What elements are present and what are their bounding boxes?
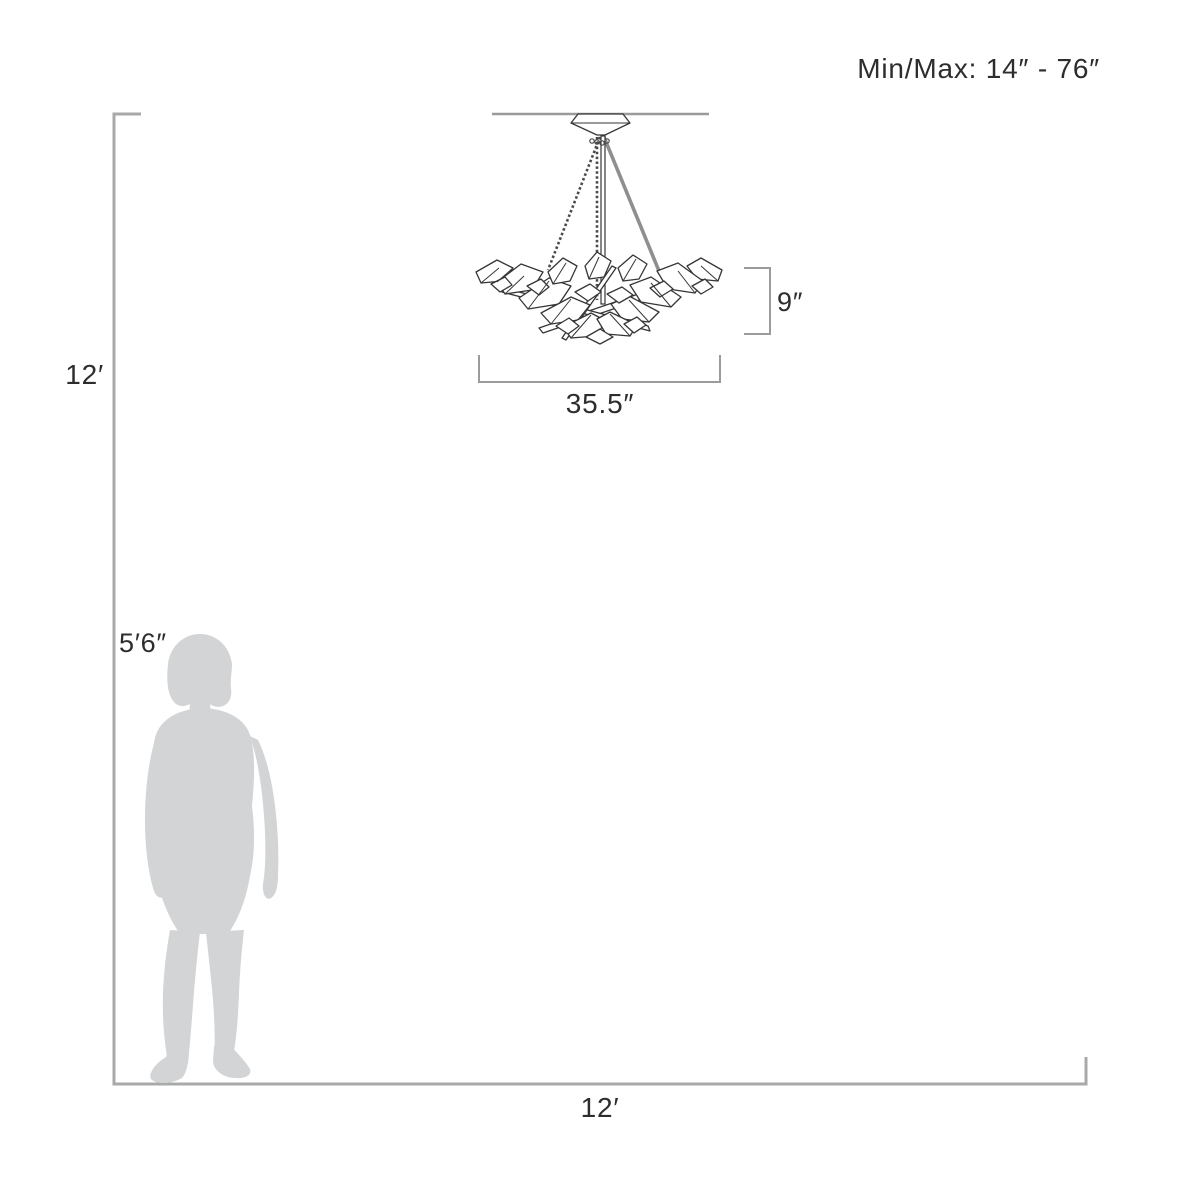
diagram-drawing xyxy=(0,0,1200,1200)
chain-right xyxy=(604,137,659,271)
height-dimension-bracket xyxy=(744,268,770,334)
room-width-label: 12′ xyxy=(558,1092,642,1124)
person-height-label: 5′6″ xyxy=(119,628,167,659)
dimension-diagram: Min/Max: 14″ - 76″ 12′ 5′6″ 9″ 35.5″ 12′ xyxy=(0,0,1200,1200)
person-silhouette xyxy=(145,634,278,1083)
width-dimension-bracket xyxy=(479,355,720,382)
room-height-label: 12′ xyxy=(30,359,104,391)
min-max-label: Min/Max: 14″ - 76″ xyxy=(857,53,1100,85)
crystal-cluster xyxy=(476,252,722,344)
fixture-height-label: 9″ xyxy=(777,287,803,318)
fixture-width-label: 35.5″ xyxy=(545,388,655,420)
chain-left xyxy=(548,137,600,270)
canopy xyxy=(571,114,630,135)
